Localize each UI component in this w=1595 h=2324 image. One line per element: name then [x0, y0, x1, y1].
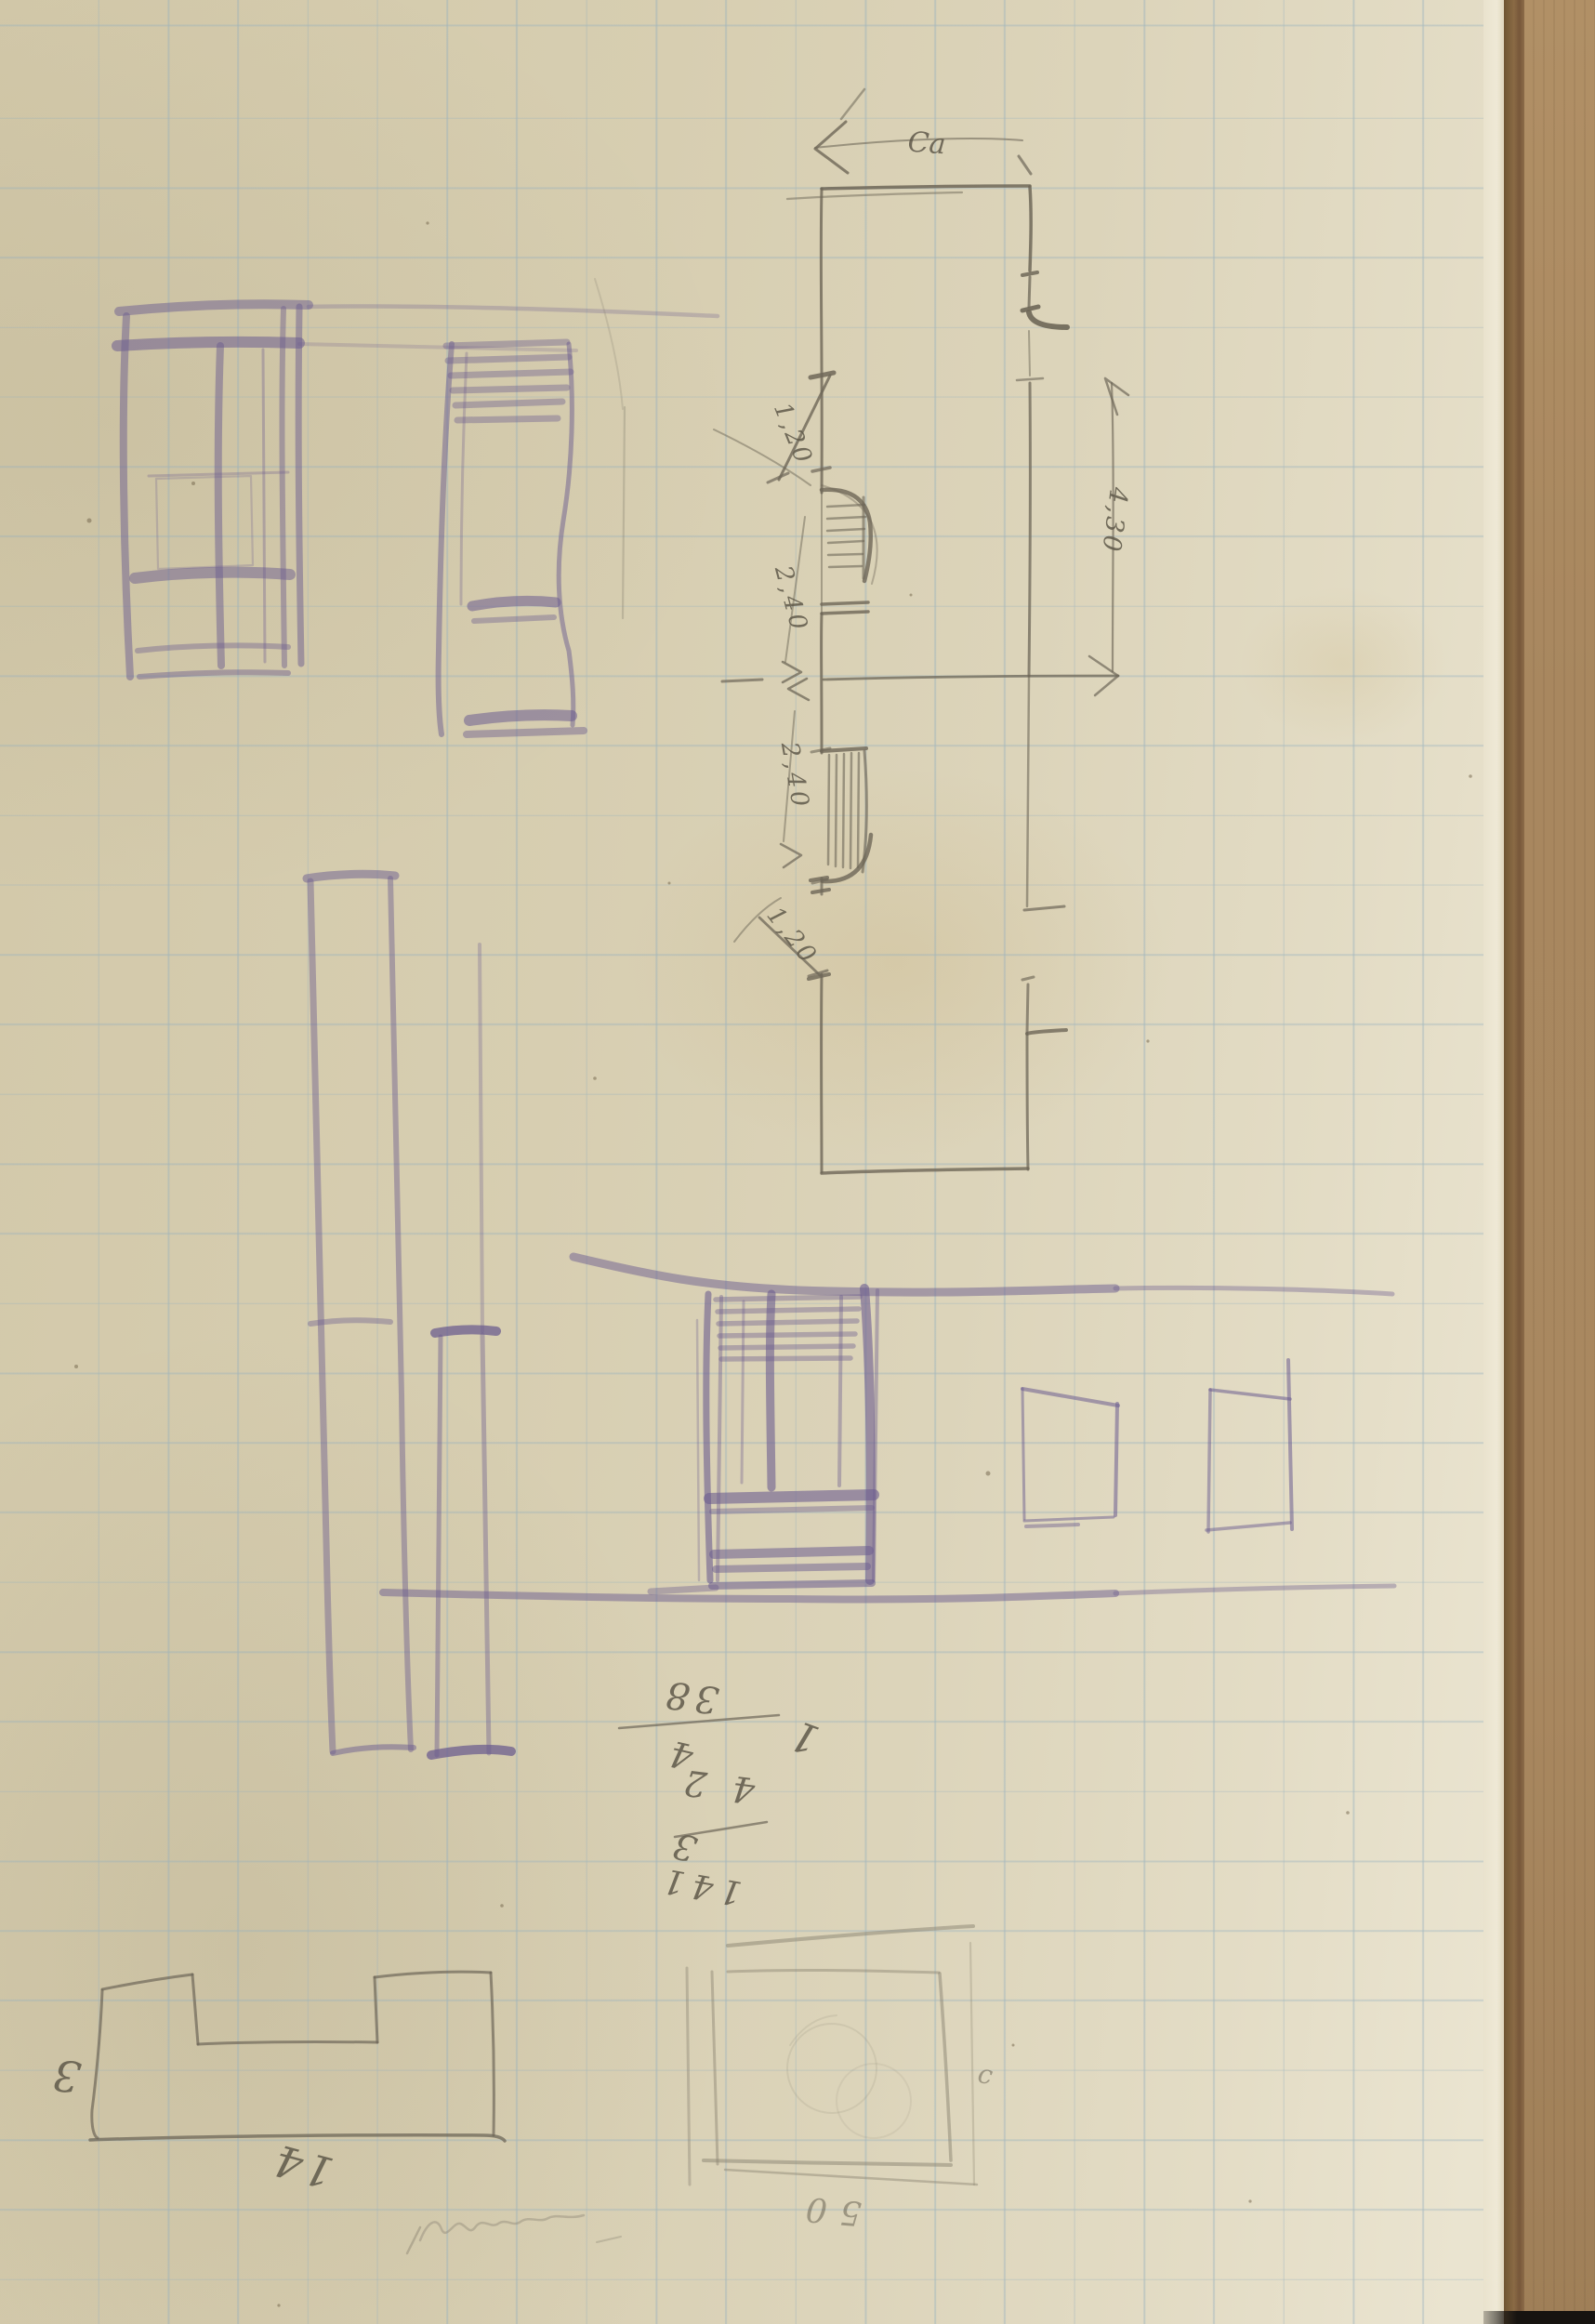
faint-script [407, 2215, 621, 2253]
window-sketch-left [117, 304, 718, 677]
plan-window-symbol-upper [822, 485, 877, 614]
facade-small-window-1 [1022, 1389, 1118, 1526]
square-bottom-label: 50 [792, 2190, 863, 2229]
plan-window-symbol-lower [812, 748, 871, 883]
sketchbook-scan: Ca 1,20 2,40 4,30 2,40 1,20 38 4 42 3 14… [0, 0, 1595, 2324]
facade-small-window-2 [1206, 1360, 1292, 1532]
facade-main-window [651, 1288, 877, 1591]
square-plan-sketch [687, 1926, 977, 2185]
plan-span-label: Ca [907, 129, 947, 160]
tall-rectangle-sketches [307, 874, 511, 1755]
floor-plan-sketch [714, 89, 1128, 1173]
pencil-sketches [0, 0, 1595, 2324]
notched-plan-sketch [90, 1972, 505, 2141]
facade-sketch [383, 1257, 1394, 1600]
calc-sum: 38 [658, 1674, 720, 1718]
window-sketch-right [439, 342, 584, 734]
ghost-outline [595, 279, 625, 618]
